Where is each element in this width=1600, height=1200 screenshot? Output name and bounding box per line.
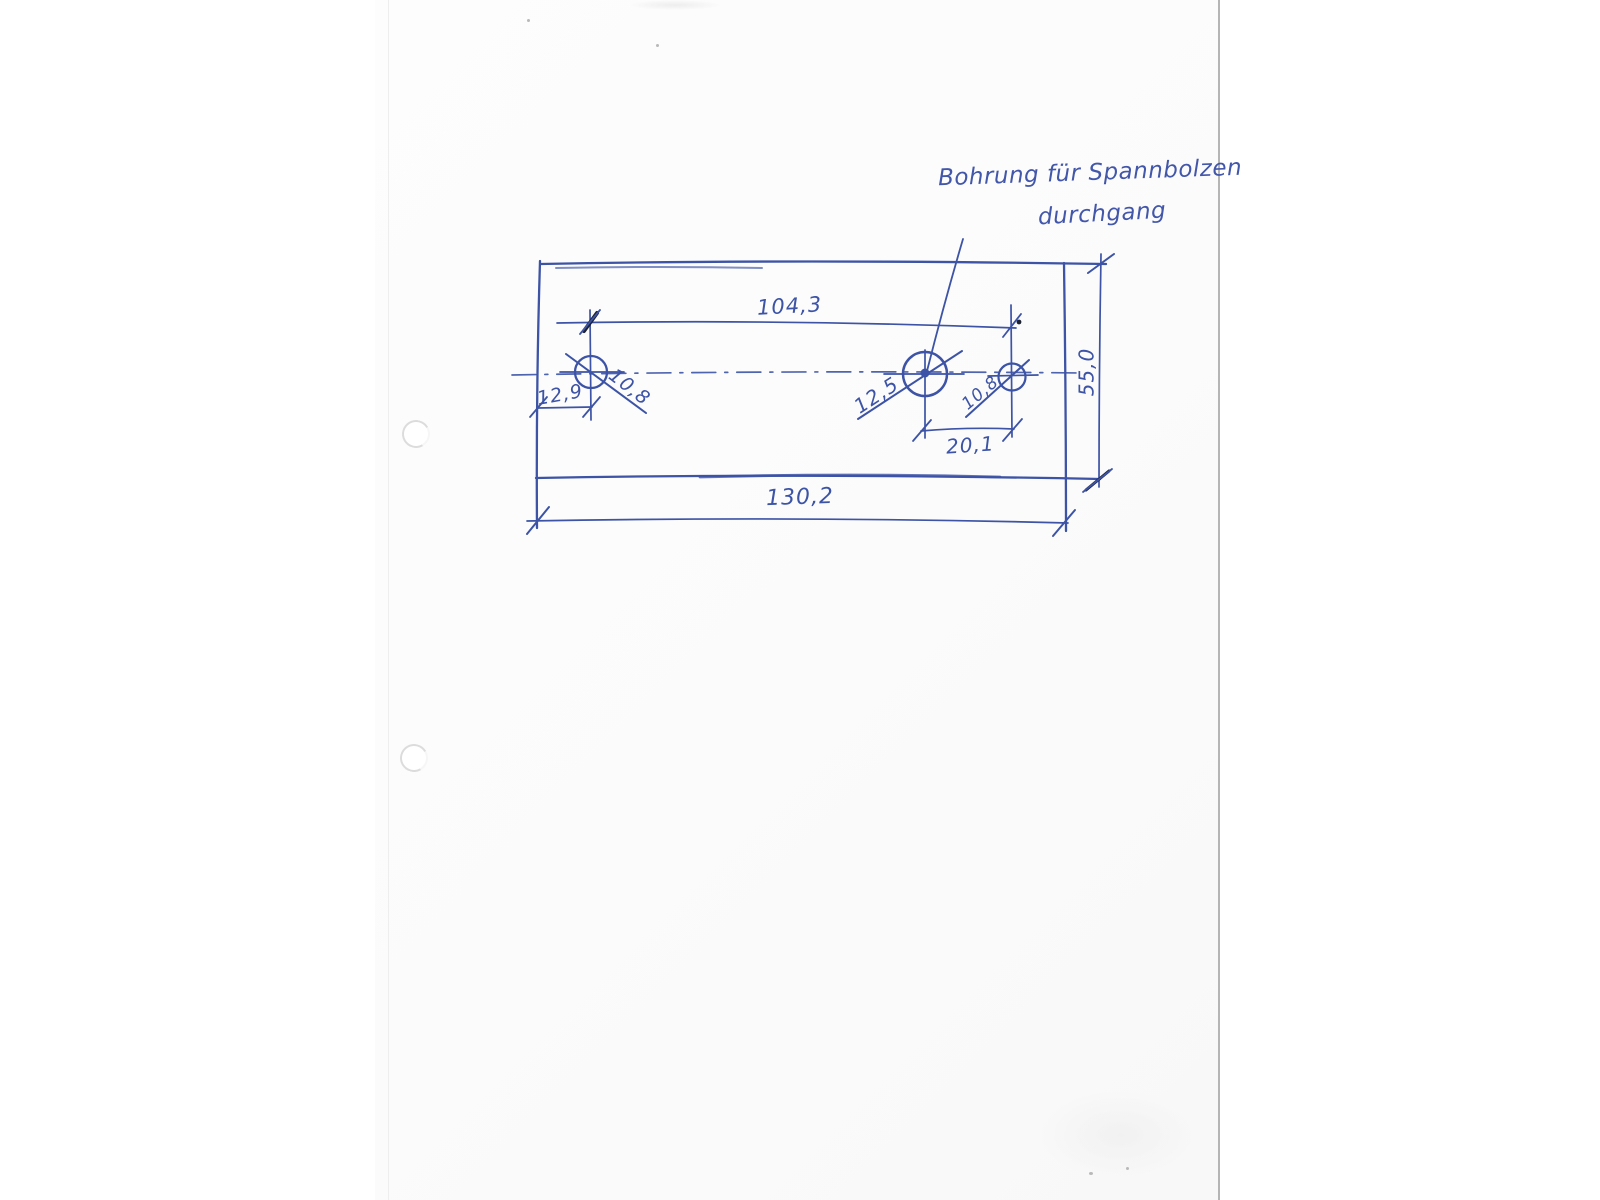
- dim-tick-plate-height-bottom: [1083, 469, 1112, 492]
- dim-label-hole-pitch: 20,1: [945, 433, 995, 456]
- technical-drawing-svg: [0, 0, 1600, 1200]
- plate-top-edge: [541, 262, 1106, 265]
- dim-label-plate-height: 55,0: [1076, 348, 1096, 397]
- dim-line-hole-pitch: [921, 428, 1014, 431]
- dim-tick-hole-span-right-ink-dot: [1017, 320, 1022, 325]
- dim-line-plate-height: [1099, 254, 1101, 487]
- dim-line-overall-width: [527, 519, 1068, 523]
- dim-label-hole-span: 104,3: [756, 294, 822, 318]
- note-leader-line: [927, 239, 963, 371]
- plate-right-edge: [1064, 263, 1066, 531]
- scanned-sketch-page: 104,3 130,2 55,0 12,9 10,8 12,5 10,8 20,…: [0, 0, 1600, 1200]
- plate-top-edge-retrace: [556, 267, 762, 268]
- dim-line-hole-span: [557, 322, 1016, 328]
- dim-label-overall-width: 130,2: [766, 486, 835, 510]
- hole-left-vertical-axis: [590, 310, 591, 420]
